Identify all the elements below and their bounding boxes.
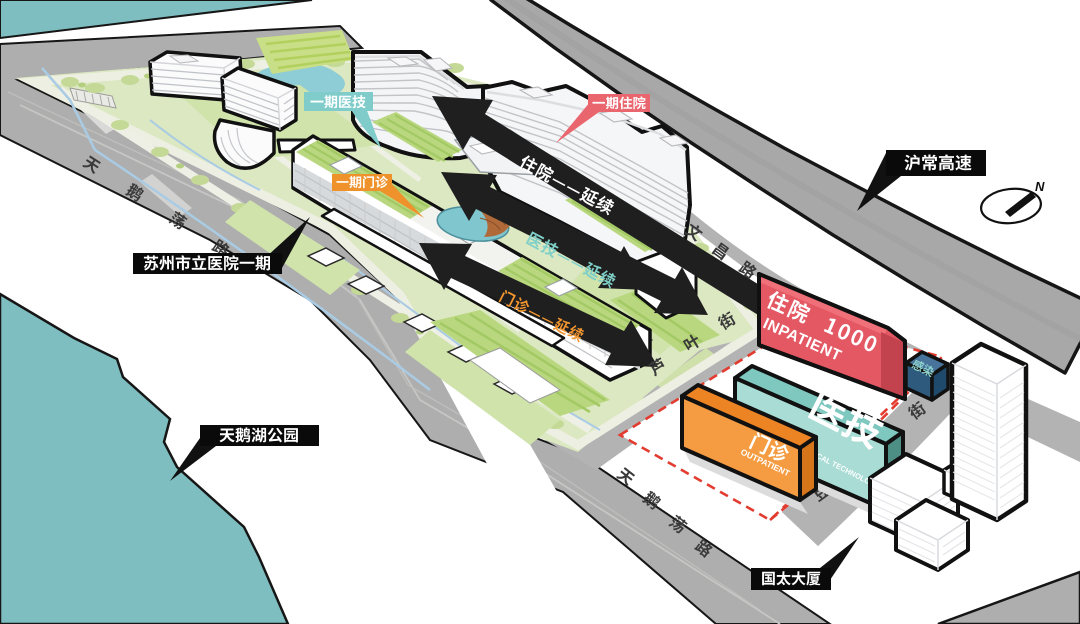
svg-text:N: N — [1035, 179, 1045, 194]
